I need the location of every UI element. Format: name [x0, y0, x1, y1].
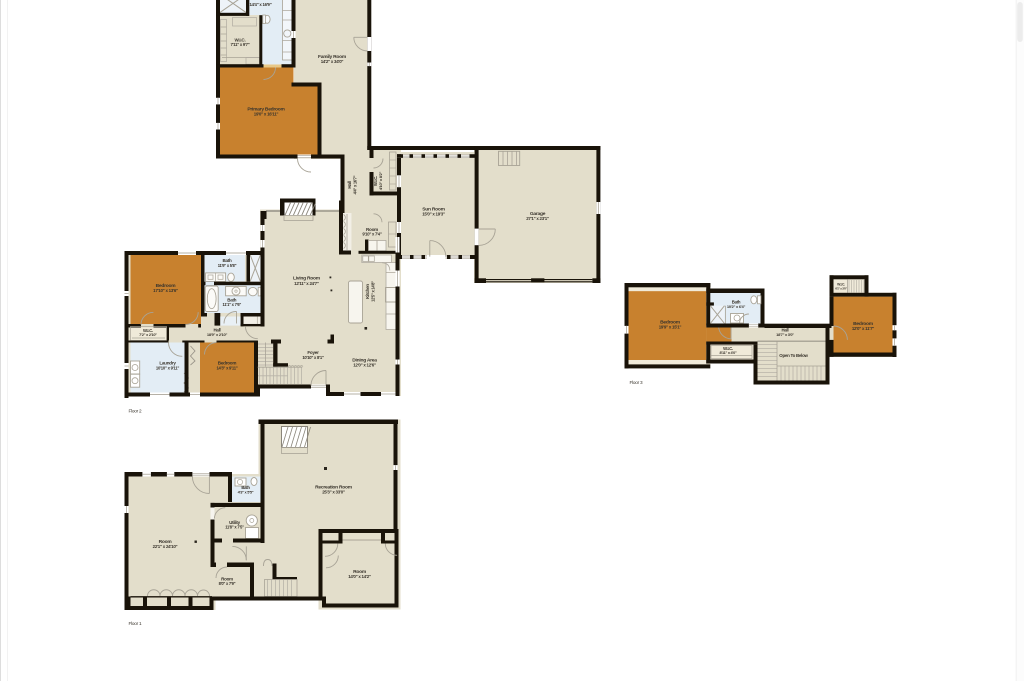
svg-text:6'1" x 3'0": 6'1" x 3'0" — [835, 286, 847, 290]
svg-text:10'10" x 8'1": 10'10" x 8'1" — [302, 355, 324, 360]
svg-text:11'9" x 5'8": 11'9" x 5'8" — [218, 263, 237, 268]
svg-text:14'4" x 16'9": 14'4" x 16'9" — [250, 2, 272, 7]
svg-text:Floor 2: Floor 2 — [129, 409, 142, 414]
svg-text:22'1" x 24'10": 22'1" x 24'10" — [153, 544, 178, 549]
svg-text:19'9" x 15'1": 19'9" x 15'1" — [659, 324, 682, 329]
svg-text:12'0" x 12'6": 12'0" x 12'6" — [353, 362, 376, 367]
svg-text:Floor 3: Floor 3 — [630, 380, 643, 385]
svg-text:25'3" x 33'0": 25'3" x 33'0" — [322, 490, 345, 495]
svg-text:11'8" x 7'5": 11'8" x 7'5" — [225, 525, 244, 530]
svg-text:10'2" x 6'4": 10'2" x 6'4" — [727, 304, 746, 309]
svg-text:18'7" x 3'0": 18'7" x 3'0" — [776, 332, 794, 337]
svg-text:19'0" x 16'11": 19'0" x 16'11" — [254, 112, 279, 117]
svg-text:14'3" x 9'11": 14'3" x 9'11" — [216, 365, 237, 370]
svg-text:10'10" x 9'11": 10'10" x 9'11" — [156, 365, 179, 370]
svg-text:W.I.C.: W.I.C. — [723, 346, 733, 351]
svg-text:7'2" x 2'10": 7'2" x 2'10" — [139, 332, 157, 337]
svg-text:7'11" x 9'7": 7'11" x 9'7" — [230, 42, 249, 47]
svg-text:9'10" x 7'4": 9'10" x 7'4" — [362, 232, 382, 237]
svg-text:8'0" x 7'9": 8'0" x 7'9" — [219, 581, 236, 586]
svg-text:11'1" x 7'6": 11'1" x 7'6" — [223, 302, 242, 307]
svg-text:14'0" x 14'2": 14'0" x 14'2" — [348, 574, 371, 579]
svg-text:4'3" x 5'5": 4'3" x 5'5" — [238, 490, 254, 495]
svg-text:15'0" x 19'3": 15'0" x 19'3" — [422, 211, 445, 216]
svg-text:18'9" x 2'10": 18'9" x 2'10" — [207, 332, 228, 337]
svg-text:Floor 1: Floor 1 — [129, 621, 142, 626]
svg-text:Hall: Hall — [347, 181, 352, 188]
svg-text:8'11" x 4'0": 8'11" x 4'0" — [720, 351, 737, 355]
svg-text:12'5" x 14'8": 12'5" x 14'8" — [370, 281, 375, 302]
svg-text:14'2" x 34'0": 14'2" x 34'0" — [321, 59, 344, 64]
svg-text:Kitchen: Kitchen — [365, 284, 370, 299]
svg-text:17'10" x 13'6": 17'10" x 13'6" — [153, 288, 178, 293]
svg-text:Open To Below: Open To Below — [779, 353, 808, 358]
svg-text:27'1" x 23'1": 27'1" x 23'1" — [526, 216, 549, 221]
svg-text:4'4" x 16'7": 4'4" x 16'7" — [353, 175, 358, 194]
svg-text:12'11" x 24'7": 12'11" x 24'7" — [294, 281, 319, 286]
svg-text:4'10" x 8'2": 4'10" x 8'2" — [378, 172, 383, 191]
svg-text:12'0" x 11'7": 12'0" x 11'7" — [852, 326, 874, 331]
